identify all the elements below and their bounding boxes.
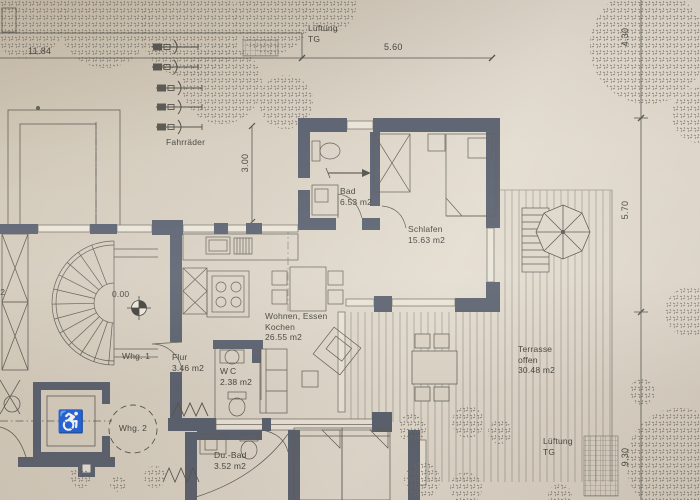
vent-grate bbox=[584, 436, 618, 496]
dubad-name: Du.-Bad bbox=[214, 450, 247, 461]
wohnen-line2: Kochen bbox=[265, 322, 327, 333]
dubad-area: 3.52 m2 bbox=[214, 461, 247, 472]
lueftung-top-line2: TG bbox=[308, 34, 338, 45]
lueftung-top-label: Lüftung TG bbox=[308, 23, 338, 44]
room-label-dubad: Du.-Bad 3.52 m2 bbox=[214, 450, 247, 471]
partial-left-label: m2 bbox=[0, 287, 5, 298]
kitchen bbox=[183, 234, 298, 317]
room-label-wc: WC 2.38 m2 bbox=[220, 366, 252, 387]
room-label-schlafen: Schlafen 15.63 m2 bbox=[408, 224, 445, 245]
bad-area: 6.53 m2 bbox=[340, 197, 372, 208]
flur-name: Flur bbox=[172, 352, 204, 363]
room-label-bad: Bad 6.53 m2 bbox=[340, 186, 372, 207]
terrasse-line1: Terrasse bbox=[518, 344, 555, 355]
schlafen-area: 15.63 m2 bbox=[408, 235, 445, 246]
room-label-terrasse: Terrasse offen 30.48 m2 bbox=[518, 344, 555, 376]
floor-plan-drawing: ♿ bbox=[0, 0, 700, 500]
wohnen-line1: Wohnen, Essen bbox=[265, 311, 327, 322]
schlafen-furniture bbox=[374, 134, 496, 216]
lueftung-bottom-label: Lüftung TG bbox=[543, 436, 573, 457]
terrasse-line2: offen bbox=[518, 355, 555, 366]
double-bed bbox=[294, 428, 390, 500]
schlafen-name: Schlafen bbox=[408, 224, 445, 235]
parasol-icon bbox=[536, 205, 590, 259]
lueftung-bottom-line2: TG bbox=[543, 447, 573, 458]
whg1-label: Whg. 1 bbox=[122, 351, 150, 362]
dimension-bikes: 3.00 bbox=[240, 146, 250, 180]
lueftung-top-line1: Lüftung bbox=[308, 23, 338, 34]
level-label: 0.00 bbox=[112, 289, 129, 300]
room-label-flur: Flur 3.46 m2 bbox=[172, 352, 204, 373]
dimension-right-middle: 5.70 bbox=[620, 193, 630, 227]
level-benchmark bbox=[127, 296, 151, 320]
lueftung-bottom-line1: Lüftung bbox=[543, 436, 573, 447]
terrasse-area: 30.48 m2 bbox=[518, 365, 555, 376]
wheelchair-icon: ♿ bbox=[57, 409, 84, 434]
flur-area: 3.46 m2 bbox=[172, 363, 204, 374]
whg2-label: Whg. 2 bbox=[108, 423, 158, 434]
dimension-top: 5.60 bbox=[384, 42, 403, 52]
wc-area: 2.38 m2 bbox=[220, 377, 252, 388]
floor-plan-photo: ♿ 11.84 5.60 3.00 4.30 5.70 9.30 Lüftung… bbox=[0, 0, 700, 500]
bad-name: Bad bbox=[340, 186, 372, 197]
neighbour-fragments bbox=[0, 234, 28, 457]
dimension-right-lower: 9.30 bbox=[620, 440, 630, 474]
wohnen-area: 26.55 m2 bbox=[265, 332, 327, 343]
room-label-wohnen: Wohnen, Essen Kochen 26.55 m2 bbox=[265, 311, 327, 343]
wc-name: WC bbox=[220, 366, 252, 377]
dimension-right-upper: 4.30 bbox=[620, 20, 630, 54]
dimension-top-left: 11.84 bbox=[28, 46, 51, 56]
fahrraeder-label: Fahrräder bbox=[166, 137, 205, 148]
